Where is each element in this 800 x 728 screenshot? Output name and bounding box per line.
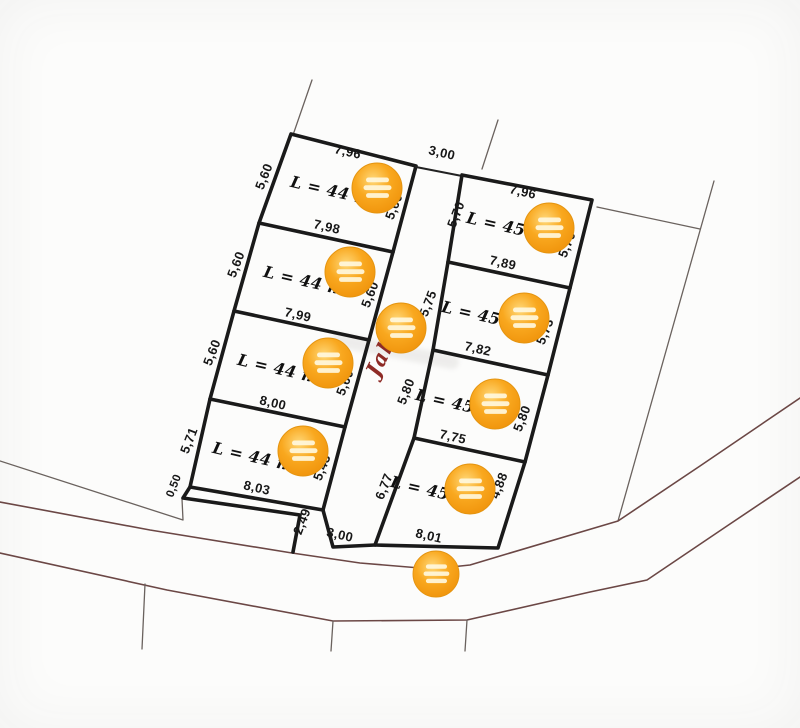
boundary-line-left (0, 461, 183, 520)
boundary-line-top-left (293, 80, 312, 135)
boundary-line-top-mid (482, 120, 498, 169)
orange-location-marker-icon[interactable] (524, 203, 574, 253)
orange-location-marker-icon[interactable] (325, 247, 375, 297)
dim-label: 8,03 (242, 477, 272, 498)
scanned-plot-plan: 7,96 5,60 5,60 L = 44 m 7,98 5,60 5,60 L… (0, 0, 800, 728)
orange-location-marker-icon[interactable] (470, 379, 520, 429)
orange-location-marker-icon[interactable] (499, 293, 549, 343)
orange-location-marker-icon[interactable] (413, 551, 459, 597)
orange-location-marker-icon[interactable] (303, 338, 353, 388)
dim-label: 8,01 (414, 525, 444, 546)
dim-label: 7,96 (508, 181, 538, 202)
step-offset-label: 0,50 (164, 473, 184, 499)
plan-svg: 7,96 5,60 5,60 L = 44 m 7,98 5,60 5,60 L… (0, 0, 800, 728)
step-offset-label: 2,49 (290, 506, 314, 536)
orange-location-marker-icon[interactable] (352, 163, 402, 213)
street-lower-edge (0, 477, 800, 621)
dim-label: 7,96 (333, 141, 363, 162)
boundary-line-diagonal (618, 181, 714, 521)
boundary-line-right (597, 207, 700, 229)
road-width-label-top: 3,00 (427, 142, 457, 163)
road-top-edge (416, 167, 462, 176)
orange-location-marker-icon[interactable] (278, 426, 328, 476)
orange-location-marker-icon[interactable] (376, 303, 426, 353)
orange-location-marker-icon[interactable] (445, 464, 495, 514)
road-width-label-bottom: 3,00 (325, 524, 355, 545)
